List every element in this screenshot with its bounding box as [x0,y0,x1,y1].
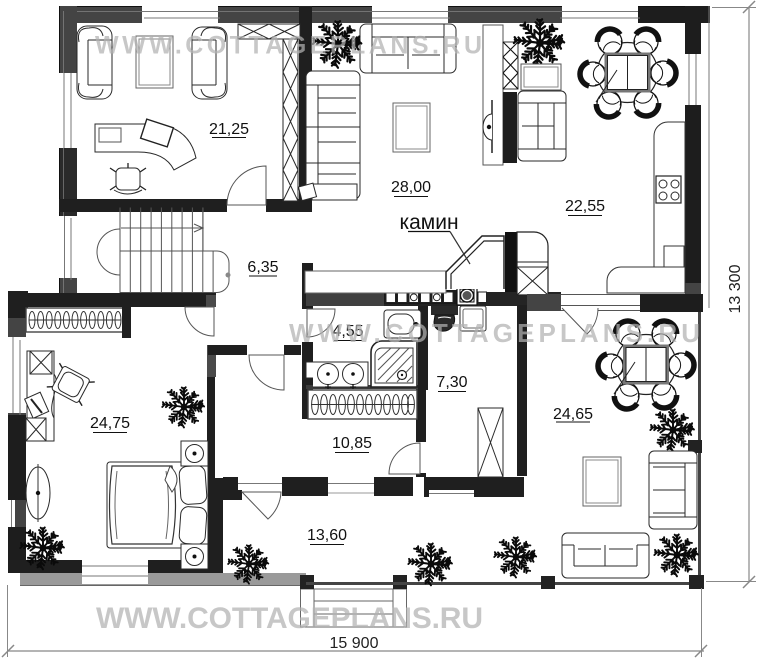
svg-text:13 300: 13 300 [727,264,744,313]
svg-text:камин: камин [399,211,458,234]
svg-text:6,35: 6,35 [247,259,278,276]
svg-text:13,60: 13,60 [307,527,347,544]
svg-text:10,85: 10,85 [332,435,372,452]
svg-text:WWW.COTTAGEPLANS.RU: WWW.COTTAGEPLANS.RU [95,32,482,60]
svg-text:28,00: 28,00 [391,179,431,196]
svg-text:WWW.COTTAGEPLANS.RU: WWW.COTTAGEPLANS.RU [96,602,483,635]
svg-text:24,75: 24,75 [90,415,130,432]
svg-text:15 900: 15 900 [330,635,379,652]
svg-text:WWW.COTTAGEPLANS.RU: WWW.COTTAGEPLANS.RU [289,318,700,348]
svg-text:21,25: 21,25 [209,121,249,138]
svg-text:22,55: 22,55 [565,198,605,215]
svg-text:24,65: 24,65 [553,406,593,423]
svg-text:7,30: 7,30 [436,374,467,391]
